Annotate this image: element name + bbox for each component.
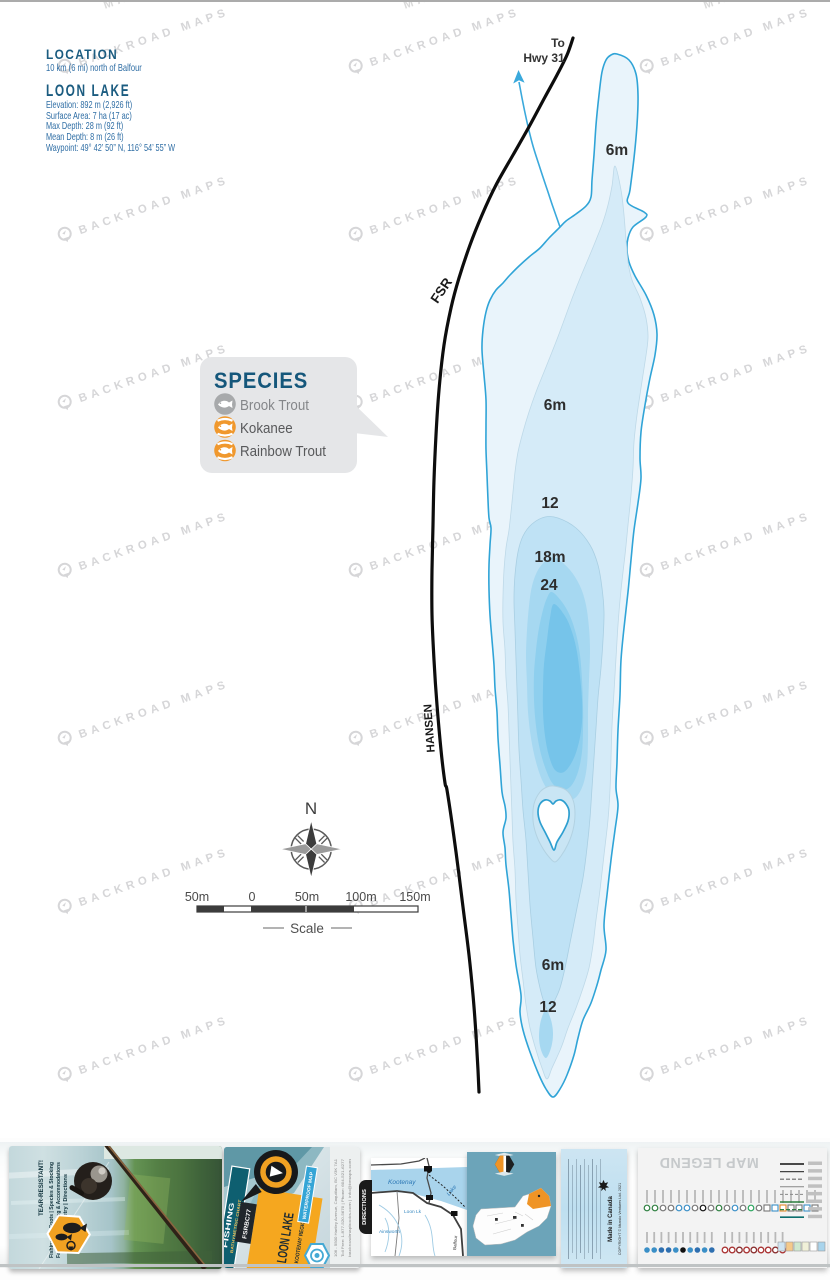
svg-text:12: 12: [539, 999, 556, 1016]
svg-text:Kootenay: Kootenay: [388, 1179, 416, 1186]
svg-text:150m: 150m: [399, 890, 430, 904]
svg-text:backroadmapbooks.com | info@bm: backroadmapbooks.com | info@bmaps.com: [348, 1159, 352, 1257]
svg-text:HANSEN: HANSEN: [422, 704, 437, 753]
svg-text:N: N: [305, 799, 317, 818]
svg-text:6m: 6m: [542, 957, 564, 974]
svg-text:Hwy 31: Hwy 31: [523, 51, 565, 65]
svg-text:12: 12: [541, 495, 558, 512]
svg-text:TEAR-RESISTANT!: TEAR-RESISTANT!: [38, 1160, 45, 1216]
svg-text:6m: 6m: [606, 142, 628, 159]
svg-text:106 - 5500 Hartley Avenue, Coq: 106 - 5500 Hartley Avenue, Coquitlam, BC…: [334, 1159, 338, 1257]
svg-text:100m: 100m: [345, 890, 376, 904]
svg-text:6m: 6m: [544, 397, 566, 414]
svg-text:Loon Lk: Loon Lk: [404, 1209, 422, 1215]
svg-text:50m: 50m: [185, 890, 209, 904]
svg-text:Scale: Scale: [290, 921, 324, 936]
svg-text:50m: 50m: [295, 890, 319, 904]
svg-text:Toll Free: 1-877-520-5670 | Ph: Toll Free: 1-877-520-5670 | Phone: 604-5…: [341, 1159, 345, 1257]
svg-text:Balfour: Balfour: [452, 1235, 458, 1250]
svg-text:Ainsworth: Ainsworth: [379, 1229, 400, 1235]
svg-text:0: 0: [249, 890, 256, 904]
svg-text:18m: 18m: [534, 549, 565, 566]
svg-text:To: To: [551, 36, 565, 50]
svg-text:24: 24: [540, 577, 558, 594]
